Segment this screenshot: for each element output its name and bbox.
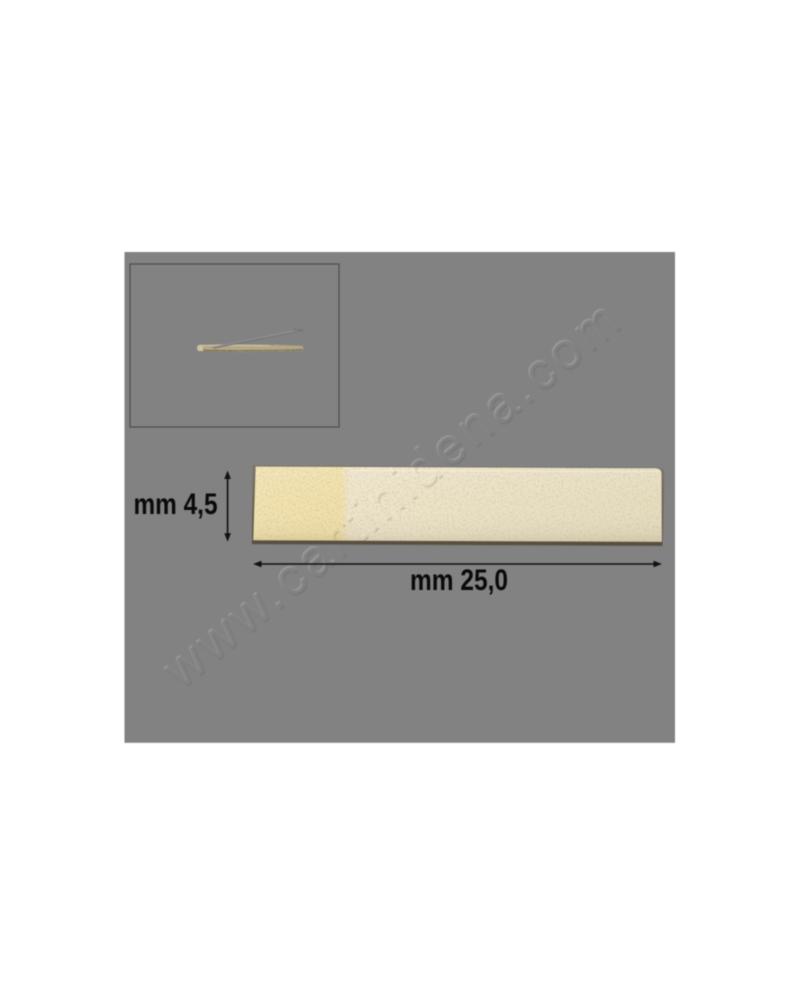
svg-text:mm 25,0: mm 25,0 <box>410 564 508 597</box>
svg-text:mm 4,5: mm 4,5 <box>134 488 218 521</box>
